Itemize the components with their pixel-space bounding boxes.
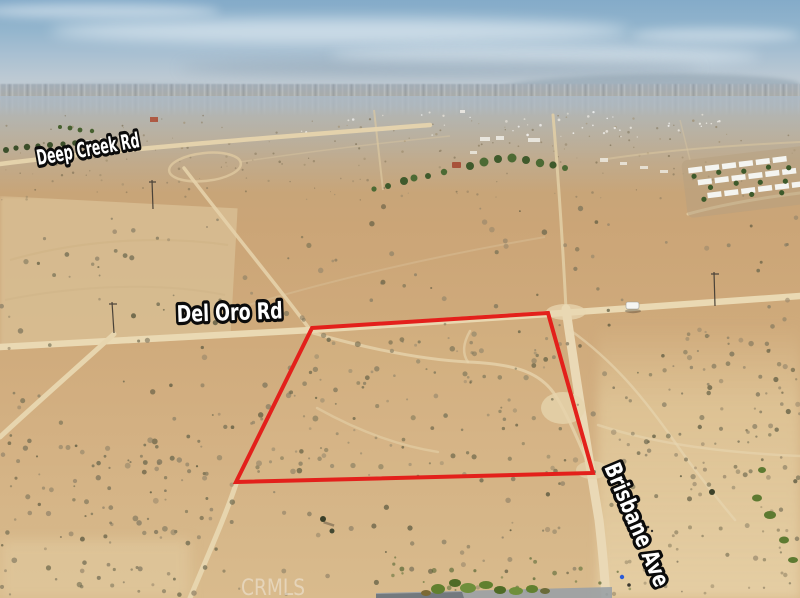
mobile-home-park bbox=[681, 145, 800, 219]
road-brisbane-north bbox=[553, 115, 566, 309]
loop-track bbox=[168, 149, 243, 184]
field-tracks bbox=[5, 240, 228, 300]
house-roof bbox=[452, 162, 461, 168]
road-junction bbox=[546, 304, 586, 320]
property-boundary bbox=[236, 313, 593, 482]
road-label-del-oro-rd: Del Oro Rd bbox=[176, 298, 283, 328]
person-marker bbox=[620, 575, 624, 579]
tree-cluster bbox=[371, 154, 568, 192]
white-car bbox=[625, 302, 641, 313]
aerial-photo: Deep Creek Rd Del Oro Rd Brisbane Ave CR… bbox=[0, 0, 800, 598]
road-label-brisbane-ave: Brisbane Ave bbox=[598, 459, 674, 591]
person-marker bbox=[627, 583, 631, 587]
watermark-crmls: CRMLS bbox=[241, 576, 305, 598]
road-parcel-corner bbox=[190, 481, 237, 598]
distant-specks bbox=[1, 111, 796, 201]
road-label-deep-creek-rd: Deep Creek Rd bbox=[35, 128, 142, 170]
terrain-overlay: Deep Creek Rd Del Oro Rd Brisbane Ave CR… bbox=[0, 0, 800, 598]
drainage-wash bbox=[376, 587, 612, 598]
road-left-branch bbox=[0, 334, 114, 437]
